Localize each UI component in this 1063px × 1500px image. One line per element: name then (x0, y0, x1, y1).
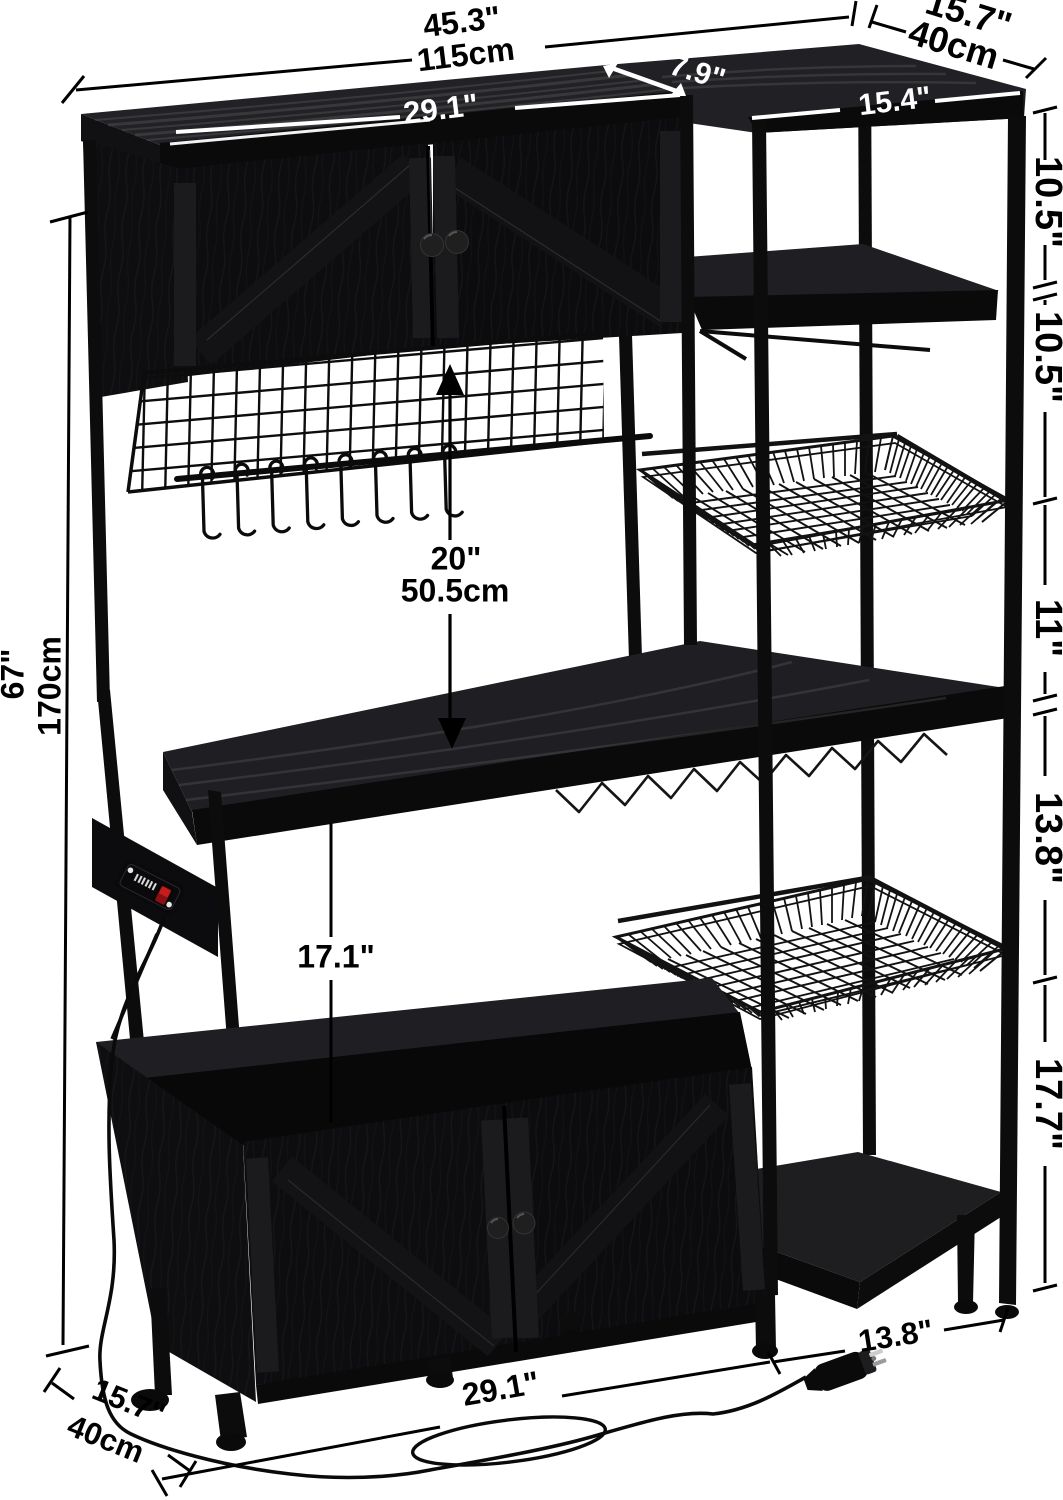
svg-text:17.1": 17.1" (297, 938, 374, 974)
svg-text:10.5": 10.5" (1027, 156, 1063, 248)
svg-text:50.5cm: 50.5cm (401, 572, 510, 608)
svg-text:13.8": 13.8" (1027, 792, 1063, 884)
svg-text:11": 11" (1027, 599, 1063, 657)
svg-text:20": 20" (431, 540, 482, 576)
svg-text:170cm: 170cm (31, 636, 67, 736)
svg-text:67": 67" (0, 649, 30, 700)
svg-text:10.5": 10.5" (1027, 311, 1063, 403)
svg-text:17.7": 17.7" (1027, 1058, 1063, 1150)
